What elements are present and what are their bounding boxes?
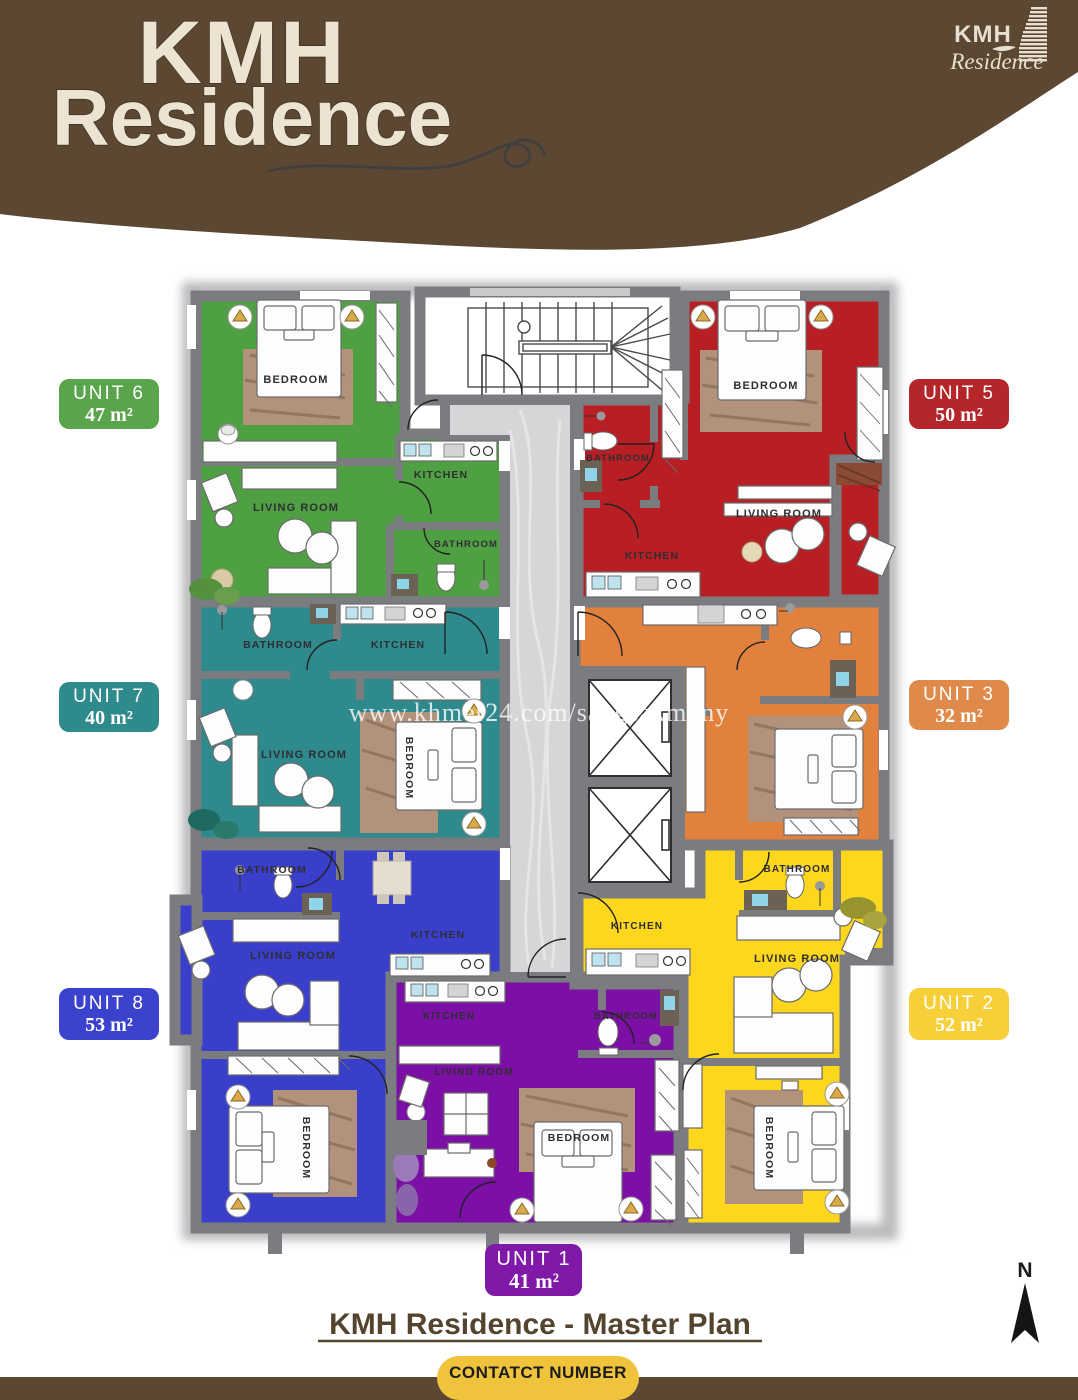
svg-text:LIVING ROOM: LIVING ROOM bbox=[253, 502, 339, 514]
svg-text:KITCHEN: KITCHEN bbox=[411, 929, 465, 941]
svg-text:KMH Residence - Master Plan: KMH Residence - Master Plan bbox=[329, 1308, 751, 1341]
svg-text:BATHROOM: BATHROOM bbox=[764, 864, 831, 875]
svg-text:BEDROOM: BEDROOM bbox=[263, 374, 328, 386]
svg-text:KITCHEN: KITCHEN bbox=[423, 1011, 475, 1022]
svg-text:BATHROOM: BATHROOM bbox=[434, 539, 498, 550]
svg-text:KMH: KMH bbox=[954, 21, 1012, 48]
svg-text:UNIT 3: UNIT 3 bbox=[923, 684, 995, 705]
svg-text:UNIT 2: UNIT 2 bbox=[923, 993, 995, 1014]
svg-text:UNIT 7: UNIT 7 bbox=[73, 686, 145, 707]
svg-text:40 m²: 40 m² bbox=[85, 707, 133, 729]
svg-text:BEDROOM: BEDROOM bbox=[548, 1132, 611, 1144]
svg-text:N: N bbox=[1017, 1259, 1032, 1282]
svg-text:53 m²: 53 m² bbox=[85, 1014, 133, 1036]
svg-text:UNIT 6: UNIT 6 bbox=[73, 383, 145, 404]
svg-text:52 m²: 52 m² bbox=[935, 1014, 983, 1036]
svg-text:50 m²: 50 m² bbox=[935, 404, 983, 426]
svg-text:UNIT 5: UNIT 5 bbox=[923, 383, 995, 404]
svg-text:KITCHEN: KITCHEN bbox=[611, 921, 663, 932]
svg-text:BEDROOM: BEDROOM bbox=[403, 737, 415, 800]
svg-text:32 m²: 32 m² bbox=[935, 705, 983, 727]
svg-text:BATHROOM: BATHROOM bbox=[586, 453, 650, 464]
svg-text:UNIT 1: UNIT 1 bbox=[497, 1248, 572, 1270]
svg-text:www.khmer24.com/sangsakmony: www.khmer24.com/sangsakmony bbox=[349, 698, 730, 727]
svg-text:UNIT 8: UNIT 8 bbox=[73, 993, 145, 1014]
svg-text:CONTATCT NUMBER: CONTATCT NUMBER bbox=[449, 1363, 627, 1382]
svg-text:KITCHEN: KITCHEN bbox=[371, 639, 425, 651]
svg-text:LIVING ROOM: LIVING ROOM bbox=[754, 953, 840, 965]
svg-text:BEDROOM: BEDROOM bbox=[733, 380, 798, 392]
svg-text:KITCHEN: KITCHEN bbox=[625, 550, 679, 562]
svg-text:LIVING ROOM: LIVING ROOM bbox=[736, 508, 822, 520]
svg-text:LIVING ROOM: LIVING ROOM bbox=[434, 1067, 513, 1078]
svg-text:KITCHEN: KITCHEN bbox=[414, 469, 468, 481]
svg-text:47 m²: 47 m² bbox=[85, 404, 133, 426]
svg-text:LIVING ROOM: LIVING ROOM bbox=[250, 950, 336, 962]
svg-text:Residence: Residence bbox=[52, 73, 452, 162]
svg-text:BEDROOM: BEDROOM bbox=[763, 1117, 775, 1180]
svg-text:BEDROOM: BEDROOM bbox=[300, 1117, 312, 1180]
svg-text:LIVING ROOM: LIVING ROOM bbox=[261, 749, 347, 761]
svg-text:41 m²: 41 m² bbox=[509, 1269, 559, 1293]
svg-text:BATHROOM: BATHROOM bbox=[243, 639, 313, 651]
svg-text:BATHROOM: BATHROOM bbox=[237, 864, 307, 876]
